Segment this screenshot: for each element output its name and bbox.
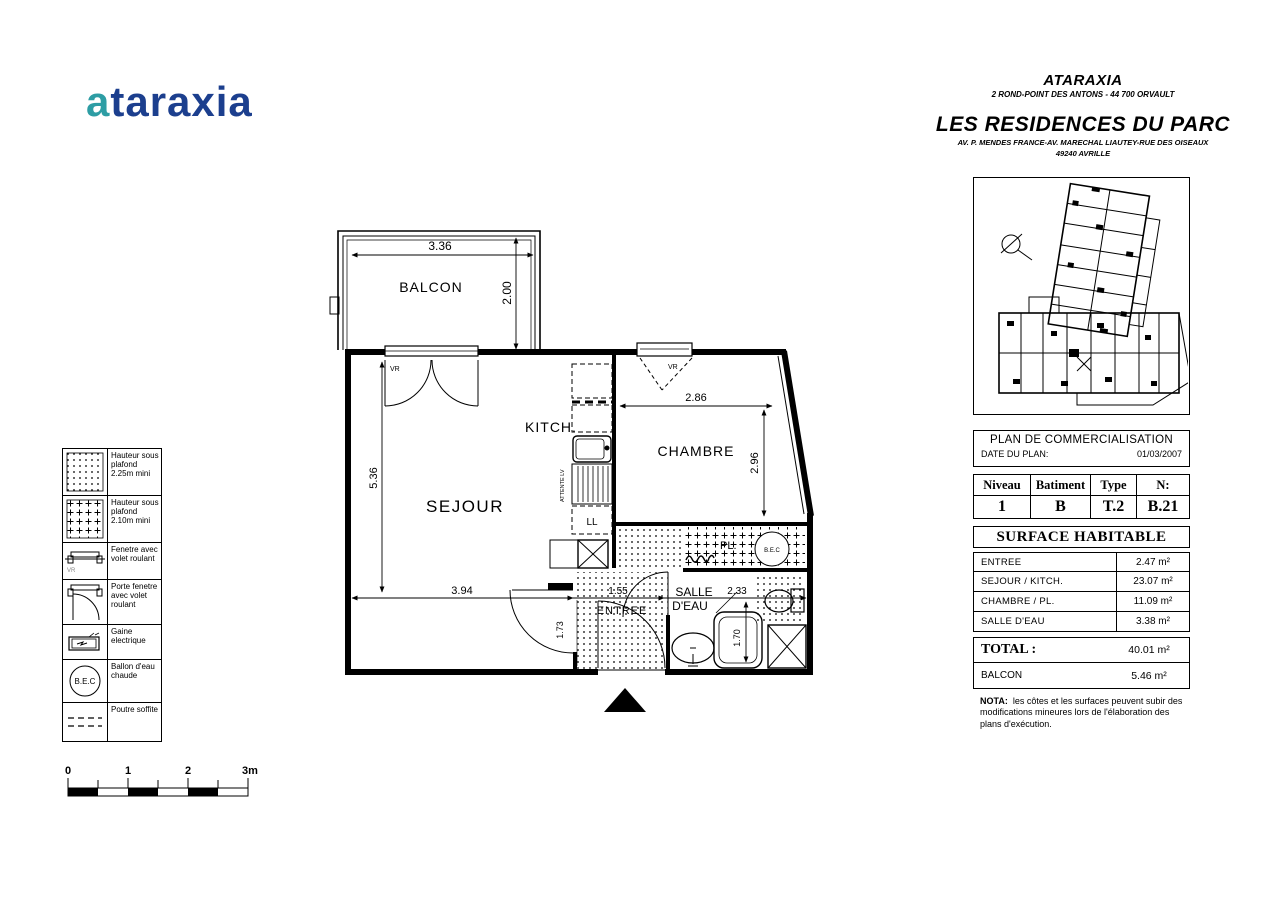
svg-text:2.00: 2.00 xyxy=(500,281,514,305)
site-plan-box xyxy=(973,177,1190,415)
salle-deau-label-2: D'EAU xyxy=(672,599,708,613)
svg-text:5.36: 5.36 xyxy=(368,467,380,488)
chambre-window xyxy=(637,343,692,390)
north-arrow-icon xyxy=(604,688,646,712)
svg-text:2.86: 2.86 xyxy=(685,392,706,404)
kitch-label: KITCH. xyxy=(525,419,577,435)
svg-text:VR: VR xyxy=(67,568,76,574)
unit-value-type: T.2 xyxy=(1091,496,1137,518)
row-label: SEJOUR / KITCH. xyxy=(974,576,1116,587)
row-value: 23.07 m² xyxy=(1116,572,1189,591)
salle-deau-label-1: SALLE xyxy=(675,585,712,599)
unit-header-type: Type xyxy=(1091,475,1137,496)
total-box: TOTAL : 40.01 m² BALCON 5.46 m² xyxy=(973,637,1190,689)
kitchen-fixtures xyxy=(550,364,612,568)
door-window-symbol-icon xyxy=(63,580,108,624)
legend-item: Gaine electrique xyxy=(63,625,161,660)
legend-item: VR Fenetre avec volet roulant xyxy=(63,543,161,580)
electric-duct-symbol-icon xyxy=(63,625,108,659)
row-label: SALLE D'EAU xyxy=(974,616,1116,627)
row-value: 3.38 m² xyxy=(1116,612,1189,631)
svg-text:1.70: 1.70 xyxy=(732,629,742,647)
total-value: 40.01 m² xyxy=(1109,644,1189,656)
legend-item: Hauteur sous plafond 2.25m mini xyxy=(63,449,161,496)
row-value: 2.47 m² xyxy=(1116,553,1189,571)
legend-label: Hauteur sous plafond 2.25m mini xyxy=(108,449,161,495)
company-name: ATARAXIA xyxy=(930,72,1236,89)
floor-plan: VR VR xyxy=(320,215,830,725)
dots-pattern-swatch xyxy=(63,449,108,495)
unit-value-batiment: B xyxy=(1031,496,1091,518)
sejour-label: SEJOUR xyxy=(426,497,504,516)
unit-value-numero: B.21 xyxy=(1137,496,1189,518)
legend-label: Hauteur sous plafond 2.10m mini xyxy=(108,496,161,542)
washbasin-icon xyxy=(672,633,714,666)
svg-text:2: 2 xyxy=(185,765,191,777)
entree-label: ENTREE xyxy=(597,605,648,617)
unit-value-niveau: 1 xyxy=(974,496,1031,518)
drainer-icon xyxy=(572,464,612,504)
legend-label: Ballon d'eau chaude xyxy=(108,660,161,702)
row-value: 11.09 m² xyxy=(1116,592,1189,611)
legend-item: Hauteur sous plafond 2.10m mini xyxy=(63,496,161,543)
svg-text:1.55: 1.55 xyxy=(608,586,628,597)
partition-stub xyxy=(548,583,573,590)
svg-text:0: 0 xyxy=(65,765,71,777)
chambre-label: CHAMBRE xyxy=(657,443,734,459)
table-row: SALLE D'EAU 3.38 m² xyxy=(973,612,1190,632)
unit-header-niveau: Niveau xyxy=(974,475,1031,496)
water-heater-symbol-icon: B.E.C xyxy=(63,660,108,702)
plan-info-box: PLAN DE COMMERCIALISATION DATE DU PLAN: … xyxy=(973,430,1190,467)
ataraxia-logo: ataraxia xyxy=(86,78,253,126)
company-address: 2 ROND-POINT DES ANTONS - 44 700 ORVAULT xyxy=(930,90,1236,99)
sejour-window xyxy=(385,346,478,406)
nota-label: NOTA: xyxy=(980,696,1008,707)
logo-accent-letter: a xyxy=(86,78,110,125)
legend-item: Poutre soffite xyxy=(63,703,161,741)
logo-rest: taraxia xyxy=(110,78,252,125)
svg-text:B.E.C: B.E.C xyxy=(75,677,96,686)
svg-text:3.94: 3.94 xyxy=(451,585,472,597)
project-title: LES RESIDENCES DU PARC xyxy=(930,113,1236,137)
legend-label: Gaine electrique xyxy=(108,625,161,659)
legend-item: B.E.C Ballon d'eau chaude xyxy=(63,660,161,703)
surface-table-title: SURFACE HABITABLE xyxy=(973,526,1190,548)
legend-item: Porte fenetre avec volet roulant xyxy=(63,580,161,625)
unit-header-numero: N: xyxy=(1137,475,1189,496)
attente-lv-label: ATTENTE LV xyxy=(560,469,566,502)
svg-text:2.33: 2.33 xyxy=(727,586,747,597)
document-header: ATARAXIA 2 ROND-POINT DES ANTONS - 44 70… xyxy=(930,72,1236,158)
north-symbol-icon xyxy=(1001,234,1032,260)
row-label: CHAMBRE / PL. xyxy=(974,596,1116,607)
nota-note: NOTA: les côtes et les surfaces peuvent … xyxy=(980,696,1188,730)
total-row: TOTAL : 40.01 m² xyxy=(973,637,1190,663)
duct-box-icon xyxy=(768,625,806,668)
vr-label: VR xyxy=(390,366,400,373)
plan-date-value: 01/03/2007 xyxy=(1137,449,1182,459)
balcon-label: BALCON xyxy=(974,670,1109,681)
nota-text: les côtes et les surfaces peuvent subir … xyxy=(980,696,1182,729)
legend: Hauteur sous plafond 2.25m mini Hauteur … xyxy=(62,448,162,742)
vr-label: VR xyxy=(668,364,678,371)
table-row: ENTREE 2.47 m² xyxy=(973,552,1190,572)
balcon-row: BALCON 5.46 m² xyxy=(973,663,1190,689)
page: ataraxia ATARAXIA 2 ROND-POINT DES ANTON… xyxy=(0,0,1266,900)
beam-symbol-icon xyxy=(63,703,108,741)
total-label: TOTAL : xyxy=(974,642,1109,658)
svg-text:2.96: 2.96 xyxy=(749,452,761,473)
surface-table: ENTREE 2.47 m² SEJOUR / KITCH. 23.07 m² … xyxy=(973,552,1190,632)
pl-label: PL. xyxy=(720,540,737,552)
unit-table: Niveau Batiment Type N: 1 B T.2 B.21 xyxy=(973,474,1190,519)
cross-pattern-swatch xyxy=(63,496,108,542)
bec-label: B.E.C xyxy=(764,548,780,554)
legend-label: Poutre soffite xyxy=(108,703,161,741)
svg-text:1: 1 xyxy=(125,765,131,777)
table-row: CHAMBRE / PL. 11.09 m² xyxy=(973,592,1190,612)
svg-text:3m: 3m xyxy=(242,765,258,777)
svg-text:1.73: 1.73 xyxy=(555,621,565,639)
unit-header-batiment: Batiment xyxy=(1031,475,1091,496)
legend-label: Porte fenetre avec volet roulant xyxy=(108,580,161,624)
window-symbol-icon: VR xyxy=(63,543,108,579)
duct-box-icon xyxy=(550,540,608,568)
svg-text:3.36: 3.36 xyxy=(428,239,452,253)
plan-title: PLAN DE COMMERCIALISATION xyxy=(981,434,1182,446)
project-address: AV. P. MENDES FRANCE-AV. MARECHAL LIAUTE… xyxy=(930,138,1236,147)
site-plan-sketch xyxy=(974,178,1188,413)
legend-label: Fenetre avec volet roulant xyxy=(108,543,161,579)
balcon-value: 5.46 m² xyxy=(1109,670,1189,682)
table-row: SEJOUR / KITCH. 23.07 m² xyxy=(973,572,1190,592)
row-label: ENTREE xyxy=(974,557,1116,568)
project-city: 49240 AVRILLE xyxy=(930,149,1236,158)
ll-label: LL xyxy=(586,517,598,528)
sink-icon xyxy=(573,436,611,462)
plan-date-label: DATE DU PLAN: xyxy=(981,449,1048,459)
scale-bar: 0 1 2 3m xyxy=(56,762,266,812)
balcon-label: BALCON xyxy=(399,279,463,295)
